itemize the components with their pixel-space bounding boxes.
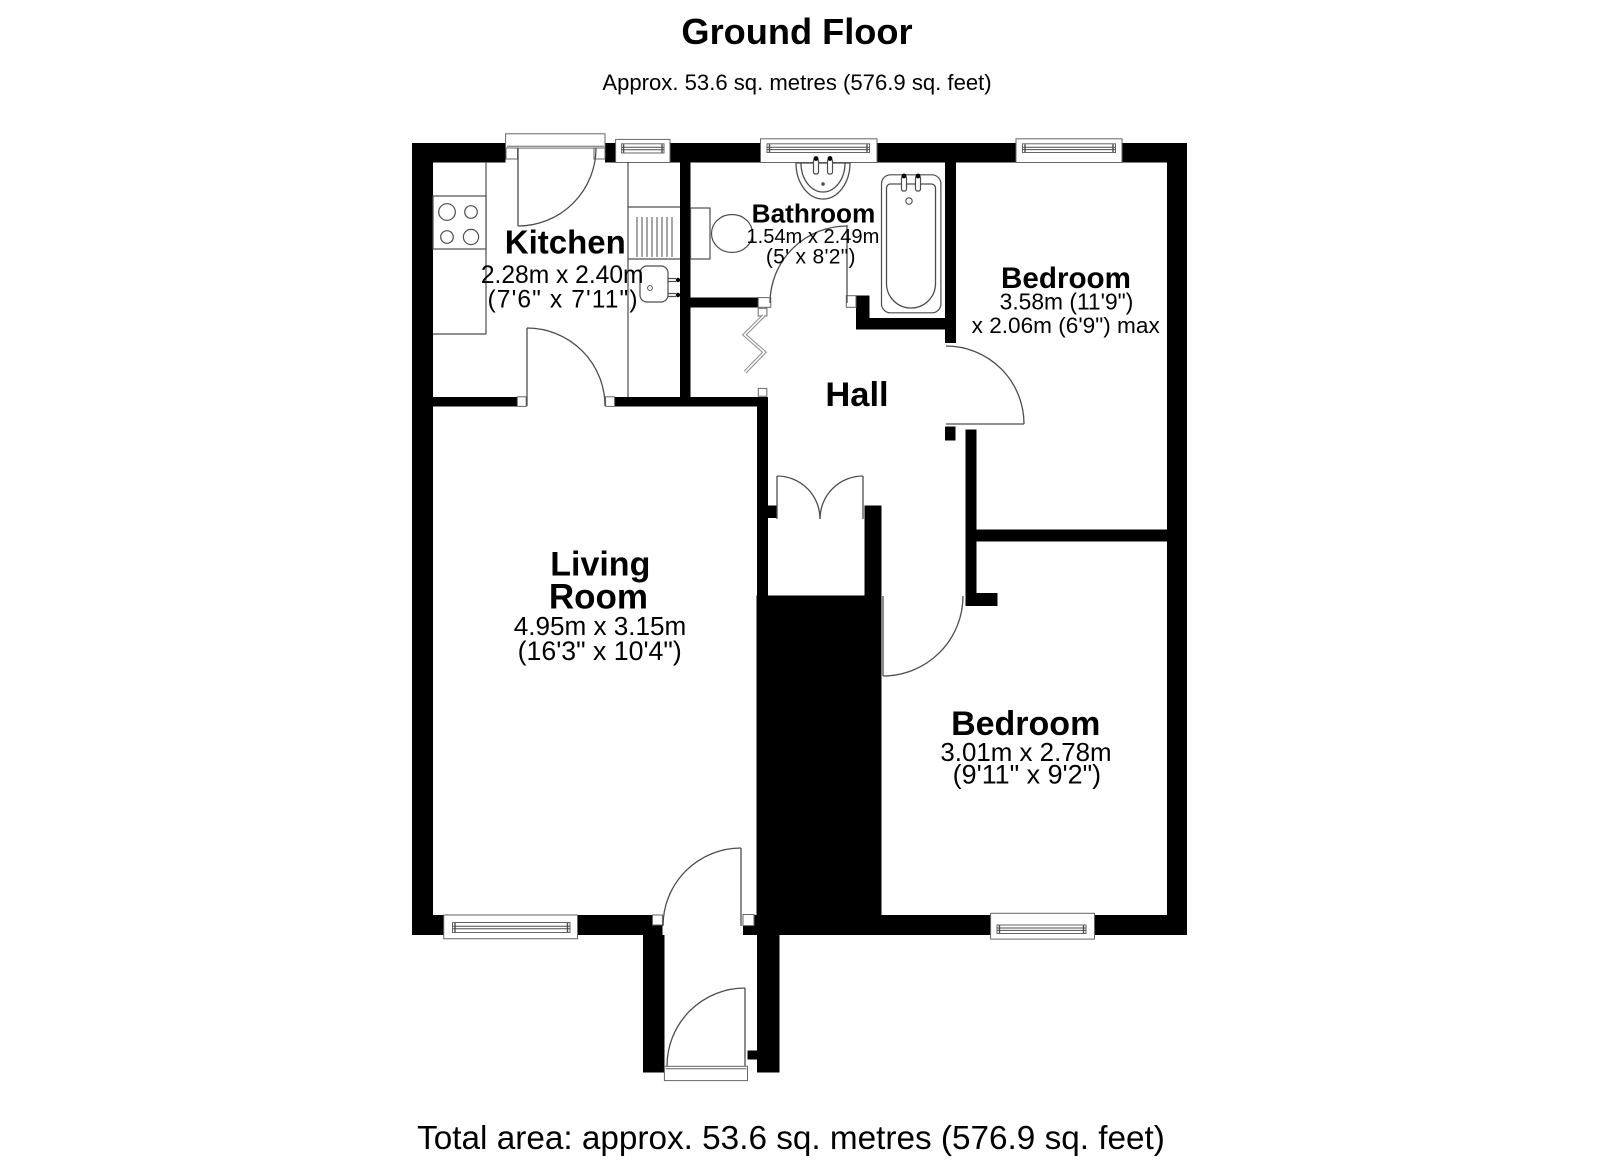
svg-text:Bedroom: Bedroom [951, 705, 1100, 743]
svg-text:Approx. 53.6 sq. metres (576.9: Approx. 53.6 sq. metres (576.9 sq. feet) [602, 70, 991, 95]
svg-text:Ground Floor: Ground Floor [681, 11, 912, 52]
svg-text:Bathroom: Bathroom [752, 199, 876, 229]
svg-text:(5' x 8'2"): (5' x 8'2") [766, 246, 856, 269]
svg-text:(16'3" x 10'4"): (16'3" x 10'4") [518, 636, 682, 666]
svg-text:Kitchen: Kitchen [505, 224, 626, 261]
svg-text:(7'6" x 7'11"): (7'6" x 7'11") [488, 287, 639, 314]
svg-text:2.28m x 2.40m: 2.28m x 2.40m [481, 262, 644, 289]
svg-text:Total area: approx. 53.6 sq. m: Total area: approx. 53.6 sq. metres (576… [417, 1120, 1165, 1157]
svg-text:(9'11" x 9'2"): (9'11" x 9'2") [953, 760, 1101, 790]
svg-text:x 2.06m (6'9") max: x 2.06m (6'9") max [972, 313, 1161, 338]
svg-text:3.58m (11'9"): 3.58m (11'9") [1000, 289, 1134, 315]
svg-text:Hall: Hall [825, 376, 888, 414]
